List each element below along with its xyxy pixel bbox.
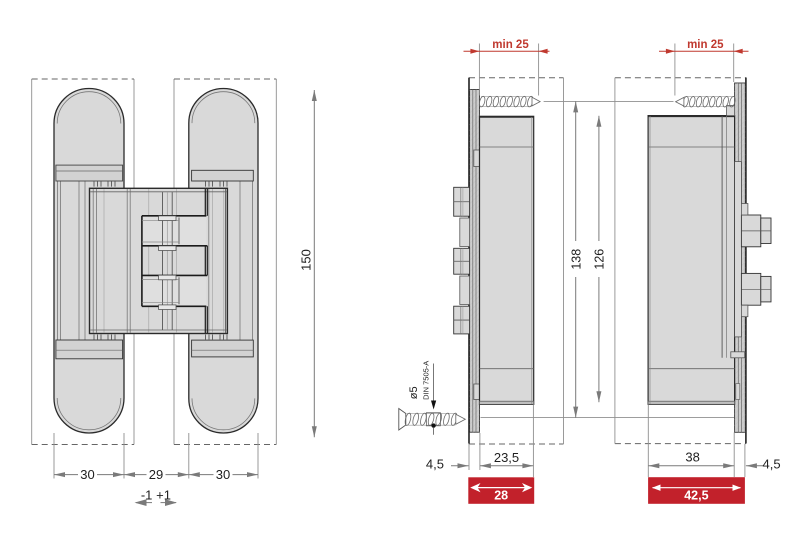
- svg-text:min 25: min 25: [492, 39, 529, 51]
- svg-text:28: 28: [494, 488, 508, 502]
- svg-text:4,5: 4,5: [426, 456, 444, 471]
- svg-text:DIN 7505-A: DIN 7505-A: [421, 361, 430, 400]
- svg-text:23,5: 23,5: [494, 450, 519, 465]
- svg-text:29: 29: [149, 467, 163, 482]
- svg-text:138: 138: [569, 249, 583, 270]
- svg-text:4,5: 4,5: [763, 456, 781, 471]
- svg-text:30: 30: [80, 467, 94, 482]
- svg-text:126: 126: [593, 249, 607, 270]
- svg-text:38: 38: [685, 449, 699, 464]
- svg-text:ø5: ø5: [408, 386, 420, 399]
- svg-text:min 25: min 25: [687, 39, 724, 51]
- svg-text:42,5: 42,5: [684, 489, 708, 503]
- svg-text:30: 30: [216, 467, 230, 482]
- svg-text:150: 150: [299, 249, 314, 271]
